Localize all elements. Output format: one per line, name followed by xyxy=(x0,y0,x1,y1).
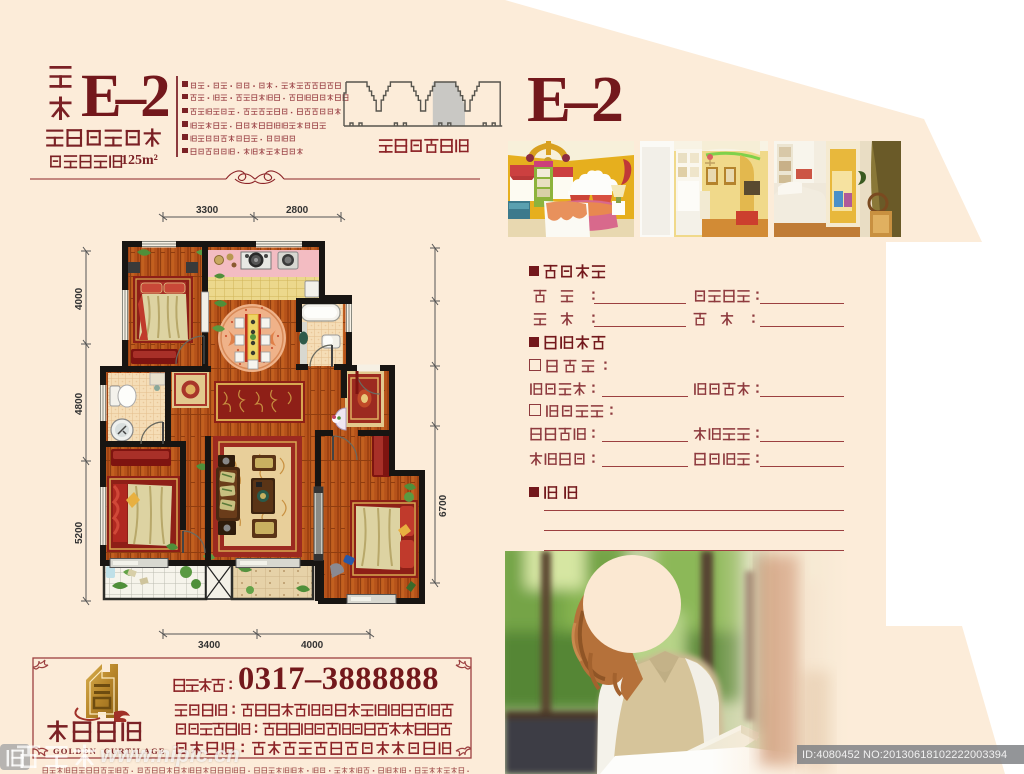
svg-text:3400: 3400 xyxy=(198,640,221,651)
svg-text:4000: 4000 xyxy=(301,640,324,651)
svg-text:6700: 6700 xyxy=(438,494,449,517)
svg-text:4800: 4800 xyxy=(74,392,85,415)
svg-text:4000: 4000 xyxy=(74,287,85,310)
svg-text:2800: 2800 xyxy=(286,205,309,216)
svg-text:3300: 3300 xyxy=(196,205,219,216)
svg-text:5200: 5200 xyxy=(74,521,85,544)
